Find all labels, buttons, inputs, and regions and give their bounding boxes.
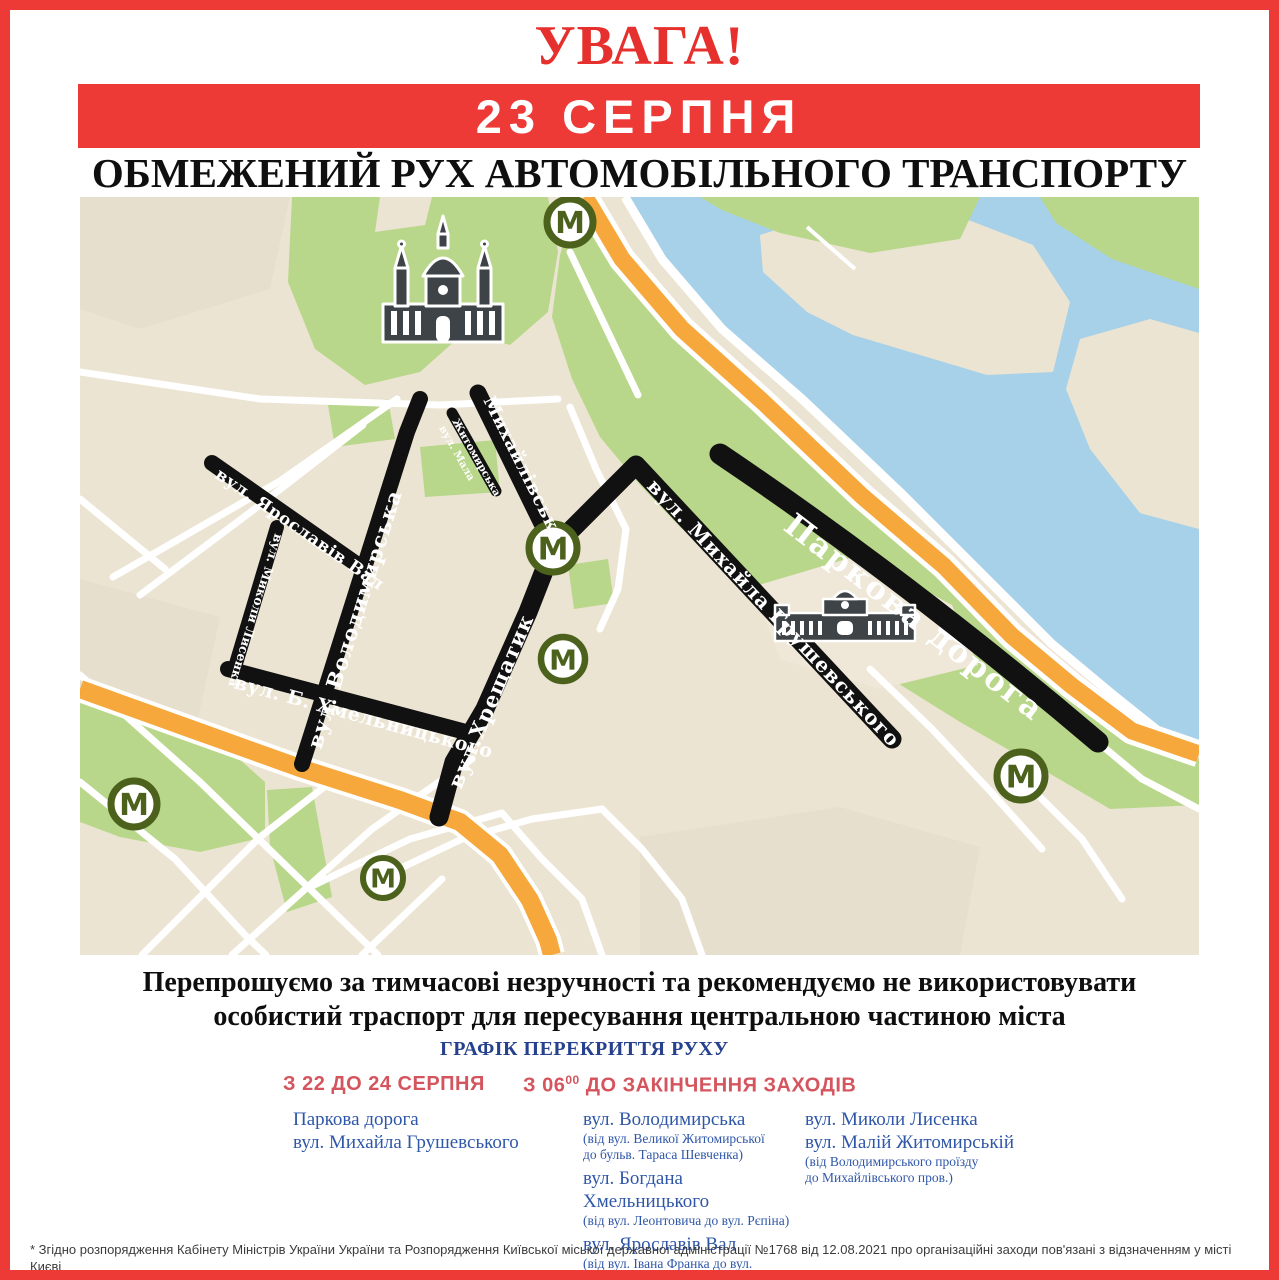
svg-text:М: М [555,206,585,241]
street-item: вул. Малій Житомирській [805,1131,1035,1154]
metro-station-arsenalna: М [997,752,1045,800]
attention-heading: УВАГА! [0,14,1279,78]
schedule-time-heading: З 0600 ДО ЗАКІНЧЕННЯ ЗАХОДІВ [523,1073,856,1098]
svg-text:М: М [549,644,577,677]
street-item-note: (від вул. Леонтовича до вул. Рєпіна) [583,1213,813,1229]
schedule-title: ГРАФІК ПЕРЕКРИТТЯ РУХУ [440,1038,729,1061]
time-prefix: З 06 [523,1075,565,1097]
legal-footnote: * Згідно розпорядження Кабінету Міністрі… [30,1241,1246,1280]
svg-text:М: М [119,788,149,823]
street-item: вул. Михайла Грушевського [293,1131,519,1154]
schedule-dates-heading: З 22 ДО 24 СЕРПНЯ [283,1073,485,1096]
metro-station-puscha: М [547,199,593,245]
street-list-right: вул. Миколи Лисенка вул. Малій Житомирсь… [805,1108,1035,1190]
street-item: вул. Миколи Лисенка [805,1108,1035,1131]
time-suffix: ДО ЗАКІНЧЕННЯ ЗАХОДІВ [580,1075,857,1097]
metro-station-teatralna: М [363,858,403,898]
street-item: Паркова дорога [293,1108,519,1131]
date-banner-text: 23 СЕРПНЯ [476,89,802,144]
street-item-note: (від вул. Великої Житомирської до бульв.… [583,1131,813,1163]
page-title: ОБМЕЖЕНИЙ РУХ АВТОМОБІЛЬНОГО ТРАНСПОРТУ [80,149,1199,197]
date-banner: 23 СЕРПНЯ [78,84,1200,148]
metro-station-khreshchatyk: М [541,637,585,681]
svg-text:М: М [370,865,396,895]
street-item: вул. Богдана Хмельницького [583,1167,813,1213]
street-item-note: (від Володимирського проїзду до Михайлів… [805,1154,1035,1186]
svg-text:М: М [1006,760,1037,796]
time-superscript: 00 [565,1073,579,1087]
apology-text: Перепрошуємо за тимчасові незручності та… [80,966,1199,1034]
traffic-restriction-poster: УВАГА! 23 СЕРПНЯ ОБМЕЖЕНИЙ РУХ АВТОМОБІЛ… [0,0,1279,1280]
street-item: вул. Володимирська [583,1108,813,1131]
city-map: М М М М М М вул [80,197,1199,955]
metro-station-universytet: М [111,781,157,827]
street-list-left: Паркова дорога вул. Михайла Грушевського [293,1108,519,1154]
